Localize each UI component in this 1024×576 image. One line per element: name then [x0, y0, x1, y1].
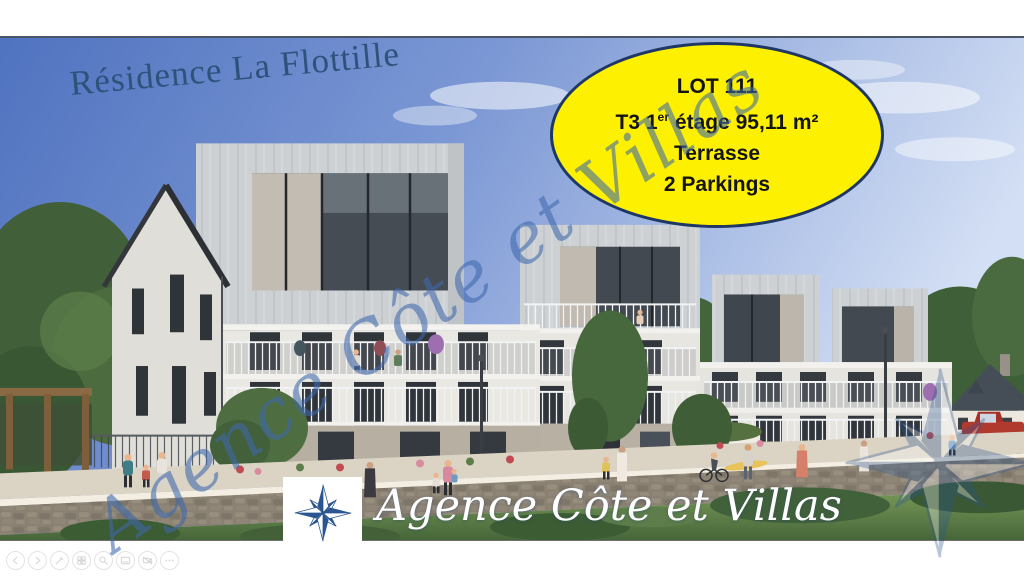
- ellipsis-icon: [164, 555, 175, 566]
- badge-lot-number: LOT 111: [677, 71, 758, 102]
- compass-icon: [291, 481, 355, 545]
- captions-icon: [120, 555, 131, 566]
- toggle-camera-button[interactable]: [138, 551, 157, 570]
- previous-icon: [10, 555, 21, 566]
- badge-unit-type-post: étage 95,11 m²: [669, 111, 818, 134]
- zoom-slide-button[interactable]: [94, 551, 113, 570]
- badge-unit-type-pre: T3 1: [616, 111, 658, 134]
- see-all-slides-button[interactable]: [72, 551, 91, 570]
- pen-icon: [54, 555, 65, 566]
- more-options-button[interactable]: [160, 551, 179, 570]
- lot-info-badge: LOT 111 T3 1er étage 95,11 m² Terrasse 2…: [550, 42, 884, 228]
- magnifier-icon: [98, 555, 109, 566]
- next-slide-button[interactable]: [28, 551, 47, 570]
- toggle-subtitles-button[interactable]: [116, 551, 135, 570]
- camera-off-icon: [142, 555, 153, 566]
- agency-logo: [283, 477, 362, 548]
- next-icon: [32, 555, 43, 566]
- pen-tools-button[interactable]: [50, 551, 69, 570]
- badge-unit-type: T3 1er étage 95,11 m²: [616, 102, 819, 138]
- badge-terrace: Terrasse: [674, 138, 760, 169]
- previous-slide-button[interactable]: [6, 551, 25, 570]
- agency-name-script: Agence Côte et Villas: [376, 480, 842, 532]
- presenter-toolbar: [6, 551, 179, 570]
- badge-unit-type-sup: er: [658, 110, 670, 124]
- presentation-window: Résidence La Flottille LOT 111 T3 1er ét…: [0, 0, 1024, 576]
- slides-grid-icon: [76, 555, 87, 566]
- badge-parkings: 2 Parkings: [664, 169, 770, 200]
